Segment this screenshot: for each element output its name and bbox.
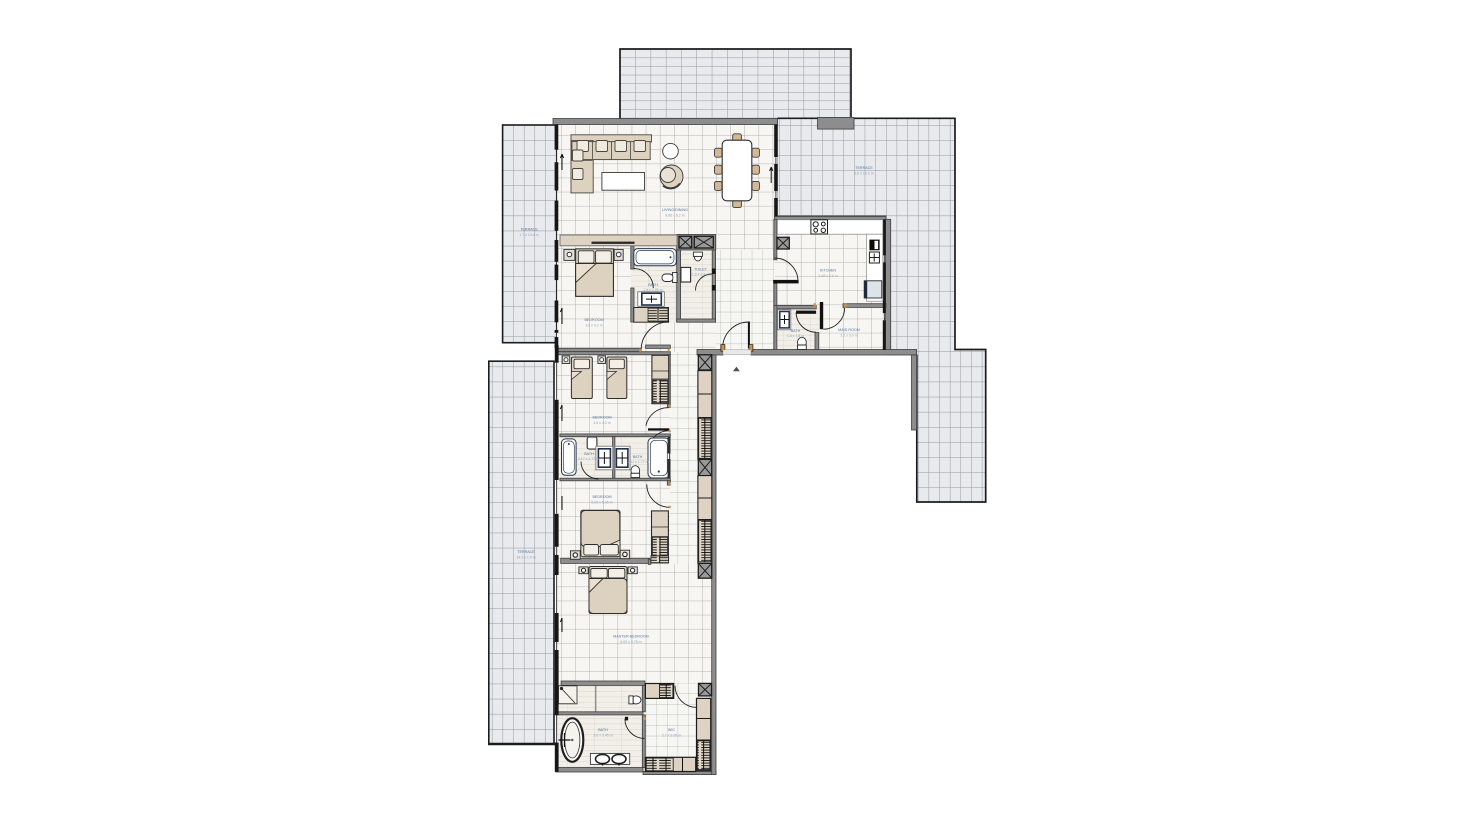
svg-text:9.6 x 15.2 m: 9.6 x 15.2 m (854, 172, 873, 176)
svg-text:1.6 x 2.55 m: 1.6 x 2.55 m (643, 288, 662, 292)
svg-text:1.6 x 1.8 m: 1.6 x 1.8 m (787, 334, 804, 338)
svg-text:4.48 x 4.4 m: 4.48 x 4.4 m (818, 274, 837, 278)
svg-text:5.05 x 5.05 m: 5.05 x 5.05 m (591, 501, 612, 505)
svg-text:LIVING/DINING: LIVING/DINING (662, 208, 688, 212)
svg-text:2.17 x 1.77 m: 2.17 x 1.77 m (578, 457, 599, 461)
svg-text:TERRACE: TERRACE (517, 550, 535, 554)
svg-text:BATH: BATH (598, 728, 608, 732)
svg-text:TERRACE: TERRACE (520, 228, 538, 232)
svg-text:BATH: BATH (648, 283, 658, 287)
svg-text:3.6 x 3.45 m: 3.6 x 3.45 m (593, 734, 612, 738)
svg-text:1.7 x 13.4 m: 1.7 x 13.4 m (519, 233, 538, 237)
svg-text:MAID ROOM: MAID ROOM (838, 328, 860, 332)
svg-text:6.05 x 5.75 m: 6.05 x 5.75 m (620, 640, 641, 644)
svg-text:BATH: BATH (633, 455, 643, 459)
svg-text:4.6 x 4.3 m: 4.6 x 4.3 m (593, 421, 610, 425)
svg-text:3.1 x 3.0 m: 3.1 x 3.0 m (840, 334, 857, 338)
svg-text:BATH: BATH (584, 452, 594, 456)
svg-text:BEDROOM: BEDROOM (584, 318, 603, 322)
svg-text:TOILET: TOILET (694, 268, 708, 272)
svg-text:BEDROOM: BEDROOM (592, 495, 611, 499)
svg-text:WIC: WIC (668, 728, 676, 732)
svg-text:BATH: BATH (791, 329, 801, 333)
svg-text:TERRACE: TERRACE (855, 166, 873, 170)
svg-text:1.6 x 2.4 m: 1.6 x 2.4 m (692, 273, 709, 277)
svg-text:3.8 x 4.2 m: 3.8 x 4.2 m (585, 324, 602, 328)
svg-text:2.7 x 3.05 m: 2.7 x 3.05 m (662, 734, 681, 738)
svg-text:KITCHEN: KITCHEN (820, 269, 837, 273)
svg-text:2.12 x 1.77 m: 2.12 x 1.77 m (627, 460, 648, 464)
svg-text:MASTER BEDROOM: MASTER BEDROOM (613, 635, 648, 639)
svg-text:14.2 x 1.5 m: 14.2 x 1.5 m (516, 556, 535, 560)
svg-text:BEDROOM: BEDROOM (592, 416, 611, 420)
svg-text:8.85 x 6.2 m: 8.85 x 6.2 m (665, 214, 684, 218)
